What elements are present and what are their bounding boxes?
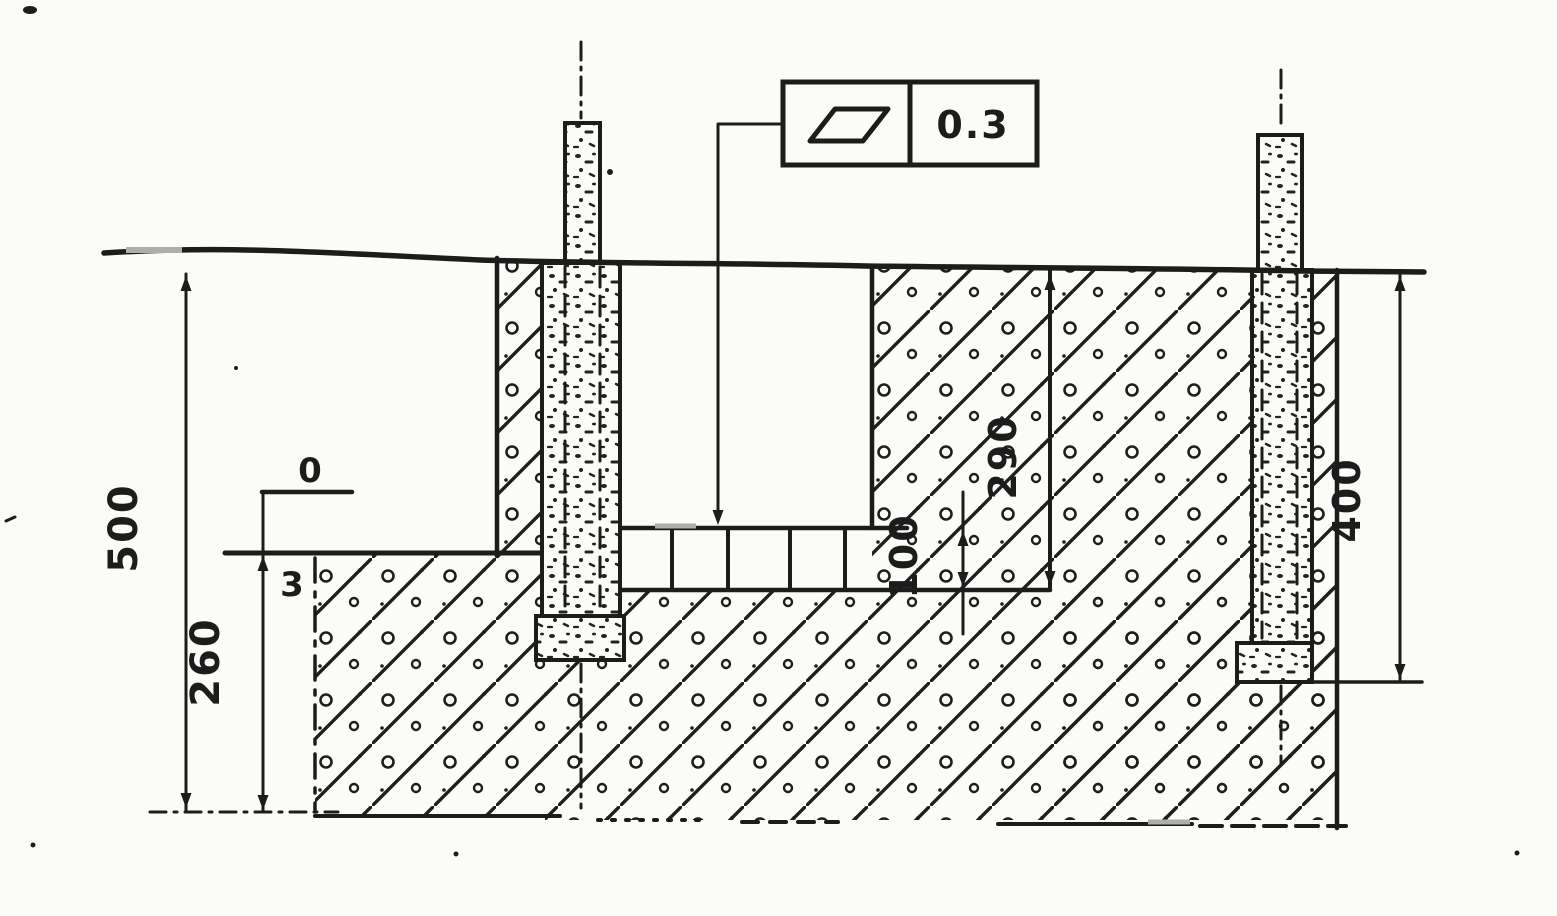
level-mark-upper: 0: [298, 451, 324, 491]
tolerance-leader-line: [718, 124, 783, 520]
arrowhead: [1395, 276, 1406, 291]
ground-surface-line: [104, 250, 1424, 272]
left-post-base-pad: [536, 616, 624, 660]
arrowhead: [258, 556, 269, 571]
brick-course-body: [615, 528, 872, 590]
level-mark-lower: 3: [280, 565, 306, 605]
dim-label-post-embedment: 400: [1325, 457, 1369, 542]
arrowhead: [713, 510, 724, 525]
section-drawing: 0.3 500 260 290 100 400 0 3: [0, 0, 1557, 916]
dim-label-total-depth: 500: [101, 483, 147, 573]
left-post-encasement: [542, 263, 620, 616]
backfill-strip-left-of-post: [497, 260, 542, 554]
ground-lower-left: [315, 554, 545, 816]
left-post-above-ground: [565, 123, 600, 263]
tolerance-value: 0.3: [936, 103, 1009, 147]
dim-label-trench-depth: 290: [981, 414, 1025, 499]
dim-label-brick-course: 100: [882, 513, 926, 598]
arrowhead: [1395, 664, 1406, 679]
arrowhead: [181, 276, 192, 291]
arrowhead: [258, 795, 269, 810]
technical-drawing-canvas: 0.3 500 260 290 100 400 0 3: [0, 0, 1557, 916]
right-post-footing-pad: [1237, 643, 1312, 682]
dim-label-lower-depth: 260: [183, 617, 229, 707]
right-post-above-ground: [1258, 135, 1302, 270]
arrowhead: [181, 793, 192, 808]
